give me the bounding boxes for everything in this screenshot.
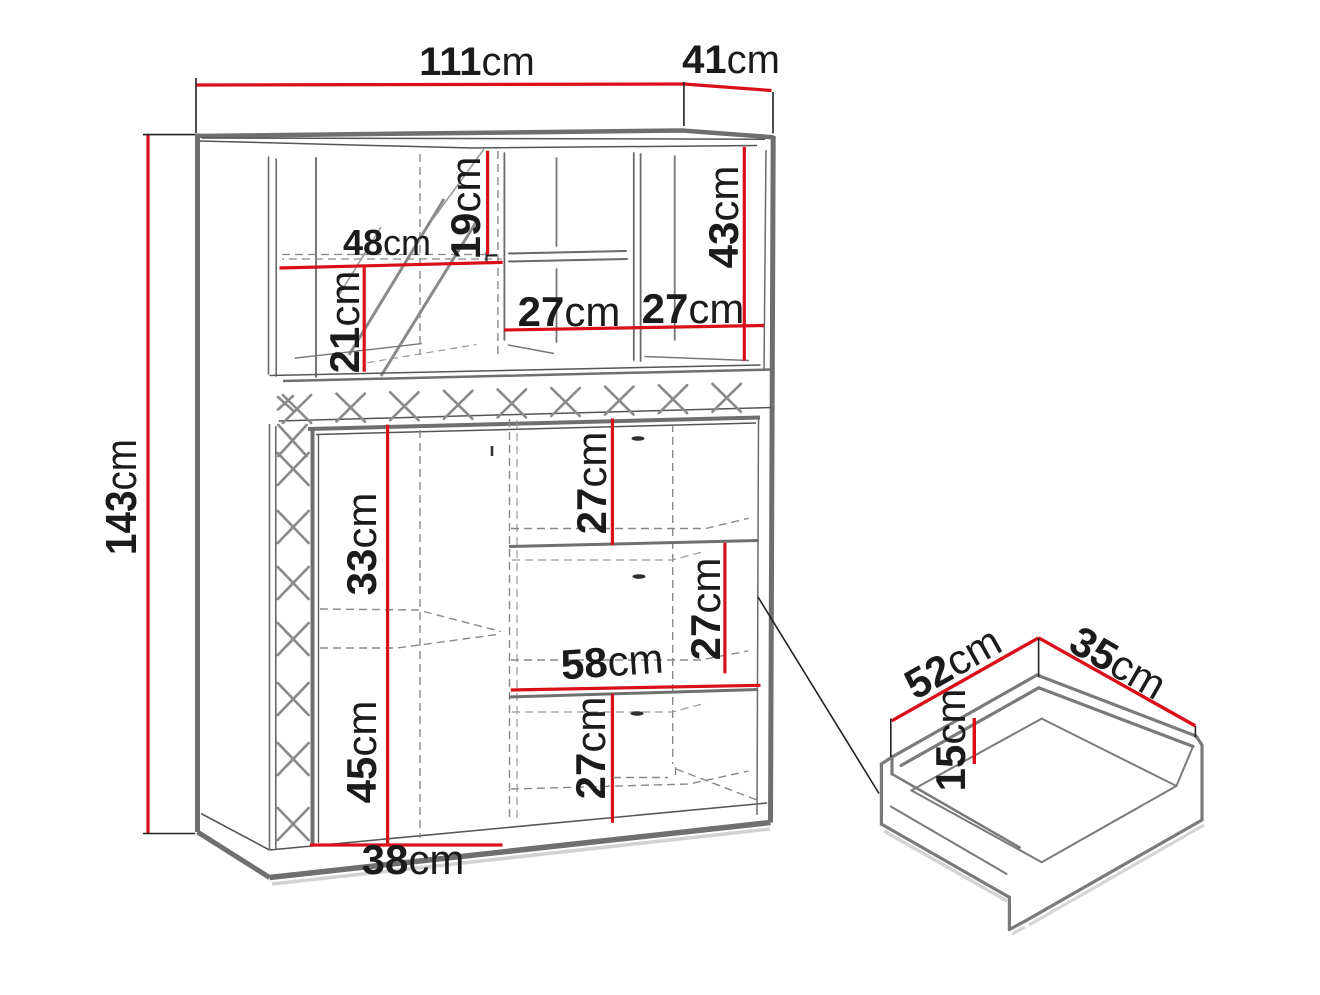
svg-text:38cm: 38cm <box>362 836 465 883</box>
svg-text:27cm: 27cm <box>642 285 745 332</box>
svg-text:143cm: 143cm <box>97 439 146 555</box>
svg-text:58cm: 58cm <box>559 634 665 688</box>
svg-text:111cm: 111cm <box>419 40 535 84</box>
svg-text:27cm: 27cm <box>568 432 615 535</box>
svg-text:45cm: 45cm <box>338 701 385 804</box>
svg-text:43cm: 43cm <box>700 166 747 269</box>
svg-text:15cm: 15cm <box>927 689 974 792</box>
svg-text:19cm: 19cm <box>442 157 489 260</box>
svg-text:21cm: 21cm <box>321 271 368 374</box>
svg-text:27cm: 27cm <box>518 288 621 335</box>
svg-text:33cm: 33cm <box>338 493 385 596</box>
svg-text:41cm: 41cm <box>682 38 780 82</box>
svg-text:48cm: 48cm <box>343 222 431 263</box>
svg-text:27cm: 27cm <box>567 697 614 800</box>
svg-text:27cm: 27cm <box>682 558 729 661</box>
